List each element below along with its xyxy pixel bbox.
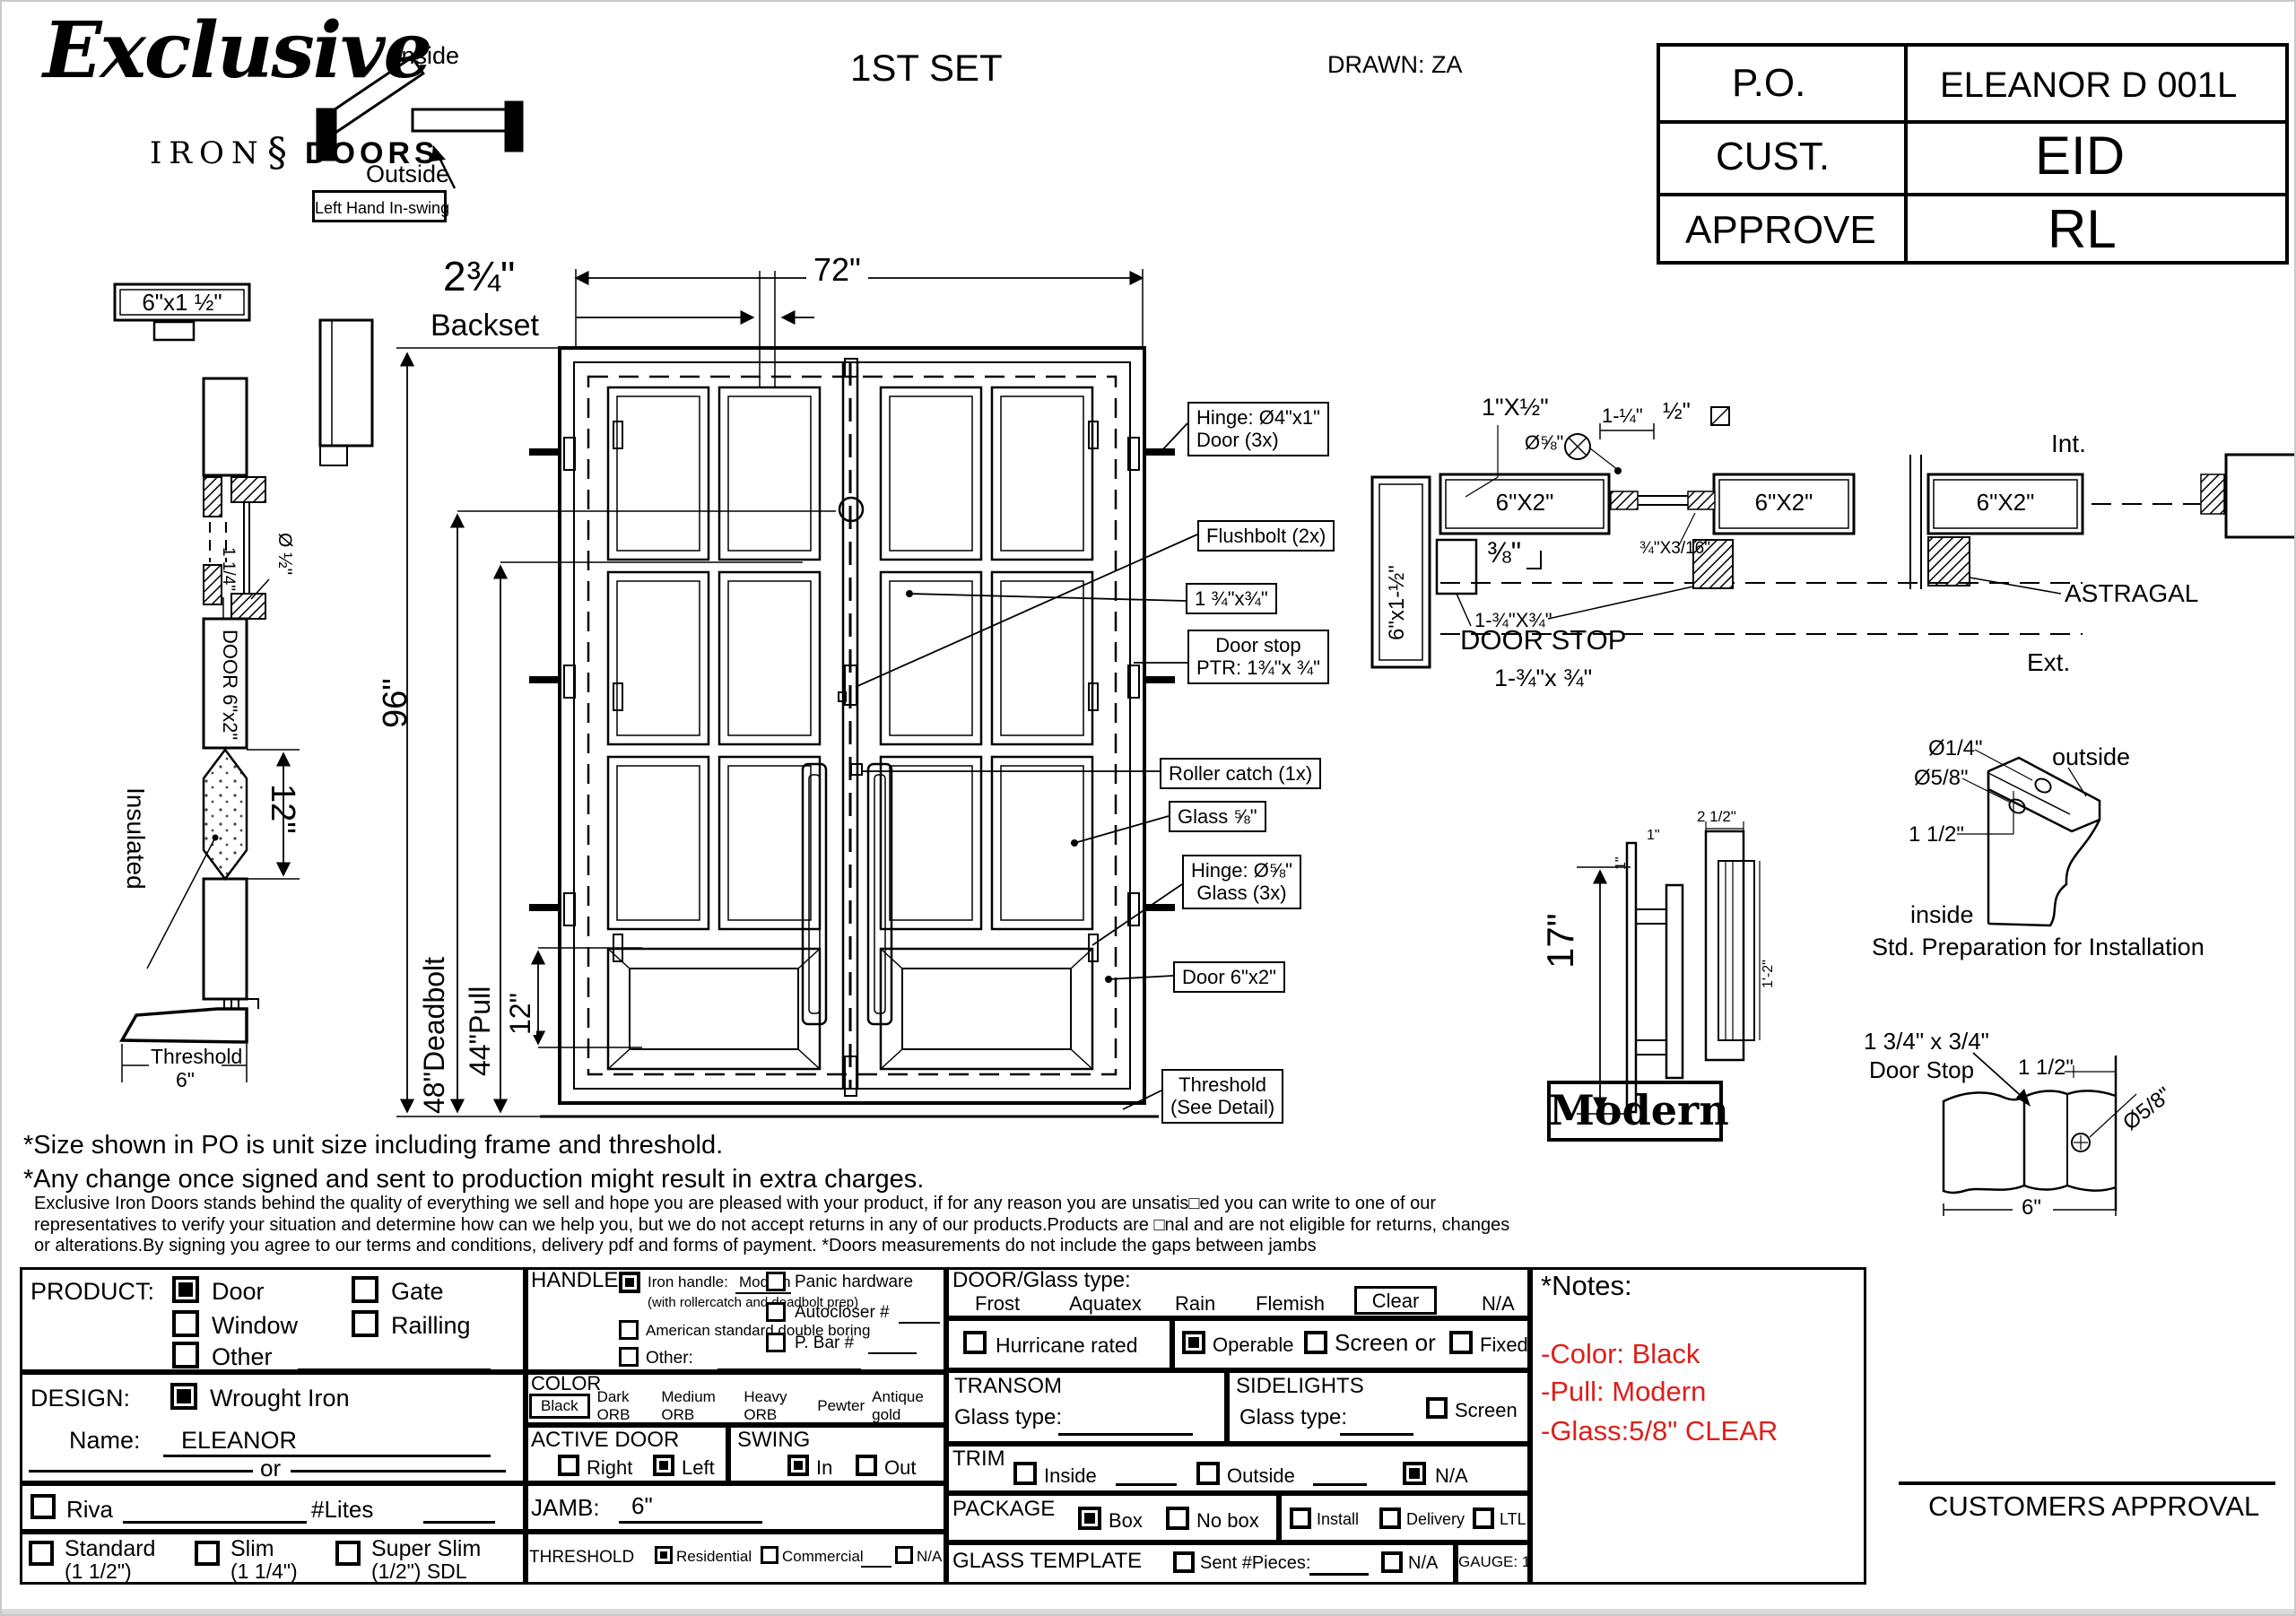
elev-height-dim: 96" [378,678,414,728]
form-threshold-commercial: Commercial [782,1549,864,1565]
callout-threshold: Threshold (See Detail) [1161,1069,1283,1124]
note-fine-3: or alterations.By signing you agree to o… [34,1237,1317,1255]
stopd-size: 1 3/4" x 3/4" [1864,1030,1989,1054]
form-template-na: N/A [1408,1554,1438,1573]
form-color-title: COLOR [531,1373,601,1394]
callout-hinge-glass-line2: Glass (3x) [1191,882,1292,904]
form-product-railing: Railling [391,1313,471,1338]
handle-proj-dim-a: 1" [1614,856,1630,870]
checkbox-american-boring [619,1320,639,1340]
form-package-nobox-label: No box [1196,1510,1259,1531]
checkbox-active-right [558,1455,579,1476]
checkbox-product-railing [352,1310,378,1337]
checkbox-handle-other [619,1347,639,1367]
blank-riva [123,1519,307,1524]
checkbox-active-left [653,1455,674,1476]
blank-transom-glass [1058,1431,1193,1436]
form-product-door: Door [212,1279,265,1304]
form-color-black: Black [529,1394,590,1419]
checkbox-swing-in [787,1455,809,1476]
form-panic-hardware: Panic hardware [795,1273,913,1291]
form-trim-outside: Outside [1227,1465,1295,1486]
form-transom-glass-type: Glass type: [954,1406,1062,1429]
po-label: P.O. [1732,63,1805,104]
elev-backset-word: Backset [430,310,539,343]
callout-door-tube: Door 6"x2" [1173,961,1285,993]
blank-product-other [298,1367,491,1371]
callout-hinge-door: Hinge: Ø4"x1" Door (3x) [1187,402,1329,456]
checkbox-product-window [172,1310,199,1337]
form-notes-glass: -Glass:5/8" CLEAR [1541,1417,1778,1447]
drawn-by: DRAWN: ZA [1327,52,1463,77]
checkbox-product-gate [352,1276,378,1303]
checkbox-install [1290,1507,1311,1529]
elev-deadbolt-dim: 48"Deadbolt [420,957,450,1114]
head-jamb-rot-label: 6"x1-½" [1386,565,1408,640]
form-threshold-residential: Residential [676,1549,752,1565]
checkbox-super-slim [335,1541,361,1566]
checkbox-threshold-commercial [761,1546,778,1564]
install-outside-label: outside [2052,744,2130,769]
form-trim-title: TRIM [952,1447,1005,1470]
swing-outside-label: Outside [366,161,449,187]
form-autocloser: Autocloser # [795,1304,890,1322]
form-color-options: Black Dark ORB Medium ORB Heavy ORB Pewt… [529,1392,942,1421]
form-active-door-title: ACTIVE DOOR [531,1429,679,1451]
form-glass-type-title: DOOR/Glass type: [952,1269,1131,1291]
form-design-name-label: Name: [69,1428,141,1453]
form-riva-label: Riva [66,1498,113,1522]
callout-threshold-line2: (See Detail) [1170,1096,1274,1118]
form-glass-clear-selected: Clear [1354,1286,1437,1315]
po-table: P.O. ELEANOR D 001L CUST. EID APPROVE RL [1657,43,2289,265]
form-threshold-na: N/A [917,1549,942,1565]
form-design-wrought: Wrought Iron [210,1386,350,1411]
handle-proj-dim-b: 1" [1647,829,1660,844]
form-package-box-label: Box [1109,1510,1143,1531]
jamb-stop-dim: 1 1/4" [219,547,237,591]
form-glass-na: N/A [1482,1293,1515,1314]
jamb-threshold-label: Threshold [151,1046,242,1067]
form-notes-color: -Color: Black [1541,1340,1700,1369]
checkbox-trim-inside [1013,1462,1037,1485]
head-dim114: 1-¼" [1602,405,1643,426]
callout-hinge-glass: Hinge: Ø⅝" Glass (3x) [1182,855,1301,909]
form-glass-template-title: GLASS TEMPLATE [952,1550,1142,1572]
callout-hinge-door-line2: Door (3x) [1196,429,1320,451]
checkbox-delivery [1379,1507,1401,1529]
blank-handle-other [717,1367,861,1370]
cust-label: CUST. [1716,136,1830,178]
callout-frame-size: 1 ¾"x¾" [1186,583,1277,614]
head-dim38: ⅜" [1487,538,1521,569]
blank-pbar [868,1351,917,1354]
blank-template-pieces [1309,1571,1369,1576]
elev-pull-dim: 44"Pull [465,986,496,1076]
form-handle-other: Other: [646,1350,693,1368]
checkbox-iron-handle [619,1272,640,1293]
head-tube1-label: 6"X2" [1440,491,1609,515]
form-sidelights-glass-type: Glass type: [1239,1406,1347,1429]
form-install-label: Install [1317,1511,1359,1528]
blank-sidelights-glass [1340,1431,1413,1436]
jamb-threshold-width: 6" [176,1069,195,1090]
jamb-glass-dia: Ø ½" [274,533,294,575]
note-line-2: *Any change once signed and sent to prod… [23,1166,924,1193]
approve-value: RL [2048,201,2117,257]
design-or-line-left [29,1470,253,1473]
form-standard-size: (1 1/2") [65,1560,132,1582]
callout-roller-catch: Roller catch (1x) [1160,758,1321,789]
form-template-sent: Sent #Pieces: [1200,1554,1310,1573]
note-fine-1: Exclusive Iron Doors stands behind the q… [34,1195,1436,1213]
checkbox-design-wrought [170,1383,197,1410]
approval-signature-line [1899,1481,2275,1485]
form-notes-pull: -Pull: Modern [1541,1377,1706,1407]
approve-label: APPROVE [1685,210,1876,251]
form-color-dark: Dark ORB [597,1388,655,1424]
callout-flushbolt: Flushbolt (2x) [1197,520,1335,552]
callout-hinge-glass-line1: Hinge: Ø⅝" [1191,859,1292,882]
note-fine-2: representatives to verify your situation… [34,1216,1509,1235]
checkbox-swing-out [856,1455,877,1476]
stopd-width-dim: 6" [2018,1196,2045,1219]
form-screen-or-label: Screen or [1335,1331,1436,1355]
form-glass-frost: Frost [975,1293,1020,1314]
form-color-heavy: Heavy ORB [744,1388,810,1424]
checkbox-template-sent [1173,1551,1195,1573]
blank-lites [423,1519,495,1524]
stopd-name: Door Stop [1869,1058,1974,1082]
form-super-slim-label: Super Slim [371,1537,481,1560]
form-package-title: PACKAGE [952,1498,1055,1520]
form-super-slim-size: (1/2") SDL [371,1560,467,1582]
checkbox-package-box [1078,1507,1101,1530]
form-transom-title: TRANSOM [954,1375,1062,1397]
form-handle-title: HANDLE [531,1269,618,1291]
form-trim-inside: Inside [1044,1465,1097,1486]
checkbox-autocloser [766,1302,786,1322]
checkbox-riva [30,1494,56,1519]
form-color-pewter: Pewter [817,1397,865,1415]
blank-jamb [619,1519,762,1524]
checkbox-fixed [1449,1331,1473,1354]
form-product-gate: Gate [391,1279,444,1304]
callout-door-stop: Door stop PTR: 1¾"x ¾" [1187,630,1329,684]
form-design-name-value: ELEANOR [181,1428,297,1453]
elev-backset-dim: 2¾" [443,255,515,298]
callout-threshold-line1: Threshold [1170,1073,1274,1096]
po-value: ELEANOR D 001L [1940,66,2237,104]
head-bead-dim: ¾"X3/16" [1639,540,1710,558]
form-swing-title: SWING [737,1429,810,1451]
head-door-stop-size: 1-¾"x ¾" [1494,665,1592,691]
blank-trim-inside [1116,1481,1177,1486]
head-tube3-label: 6"X2" [1928,491,2083,515]
form-color-medium: Medium ORB [661,1388,736,1424]
elev-rail-dim: 12" [506,993,536,1035]
checkbox-product-door [172,1276,199,1303]
checkbox-sidelights-screen [1426,1397,1448,1419]
jamb-top-label: 6"x1 ½" [115,284,249,320]
form-hurricane-label: Hurricane rated [996,1334,1138,1356]
checkbox-template-na [1381,1551,1403,1573]
form-design-title: DESIGN: [30,1386,130,1411]
stopd-offset-dim: 1 1/2" [2018,1056,2074,1079]
swing-inside-label: Inside [395,43,459,68]
form-threshold-title: THRESHOLD [529,1549,634,1567]
head-door-stop-title: DOOR STOP [1460,626,1626,656]
jamb-door-label: DOOR 6"x2" [220,630,240,740]
form-jamb-value: 6" [631,1494,653,1518]
logo-fleur-icon: § [267,133,287,174]
checkbox-package-nobox [1166,1507,1189,1530]
note-line-1: *Size shown in PO is unit size including… [23,1132,723,1159]
install-big-hole-dim: Ø5/8" [1914,767,1969,789]
form-jamb-title: JAMB: [531,1496,600,1520]
install-caption: Std. Preparation for Installation [1872,934,2205,960]
swing-hand-label: Left Hand In-swing [312,190,447,222]
form-ltl-label: LTL [1500,1511,1526,1528]
form-trim-na: N/A [1435,1465,1468,1486]
checkbox-trim-na [1403,1462,1426,1485]
checkbox-threshold-na [895,1546,913,1564]
logo-iron: IRON [150,138,265,170]
form-iron-handle-label: Iron handle: [648,1274,728,1290]
checkbox-ltl [1473,1507,1494,1529]
form-sidelights-screen: Screen [1455,1400,1518,1421]
set-title: 1ST SET [850,48,1003,88]
head-screw-dim: Ø⅝" [1525,432,1563,453]
checkbox-operable [1182,1331,1205,1354]
blank-design-name [163,1453,491,1457]
form-active-right: Right [587,1457,632,1478]
form-delivery-label: Delivery [1406,1511,1465,1528]
form-glass-flemish: Flemish [1256,1293,1325,1314]
blank-trim-outside [1313,1481,1367,1486]
callout-door-stop-line1: Door stop [1196,634,1320,656]
design-or-line-right [291,1470,506,1473]
handle-length-dim: 1'-2" [1761,960,1777,988]
handle-name-label: Modern [1549,1082,1721,1140]
callout-hinge-door-line1: Hinge: Ø4"x1" [1196,406,1320,429]
checkbox-hurricane [963,1331,987,1354]
form-design-or: or [260,1456,281,1481]
handle-height-dim: 17" [1541,913,1580,969]
form-fixed-label: Fixed [1480,1334,1528,1355]
form-gauge-value: GAUGE: 14 [1458,1554,1539,1570]
form-color-antique: Antique gold [872,1388,942,1424]
form-sidelights-title: SIDELIGHTS [1236,1375,1364,1397]
form-standard-label: Standard [65,1537,155,1560]
jamb-insulated-label: Insulated [123,787,149,890]
blank-autocloser [899,1320,940,1324]
head-astragal-bar-dim: 1"X½" [1482,395,1549,420]
install-inside-label: inside [1910,902,1974,927]
checkbox-panic-hardware [766,1272,786,1291]
logo-exclusive: Exclusive [43,11,430,91]
form-slim-label: Slim [230,1537,274,1560]
head-tube2-label: 6"X2" [1714,491,1854,515]
callout-door-stop-line2: PTR: 1¾"x ¾" [1196,656,1320,679]
jamb-rail-dim: 12" [264,784,300,834]
checkbox-product-other [172,1342,199,1368]
elev-width-dim: 72" [806,253,868,287]
blank-threshold-commercial [861,1564,891,1568]
approval-label: CUSTOMERS APPROVAL [1928,1492,2259,1522]
form-product-title: PRODUCT: [30,1279,154,1304]
form-active-left: Left [682,1457,715,1478]
checkbox-pbar [766,1333,786,1352]
handle-width-dim: 2 1/2" [1697,809,1736,825]
callout-glass: Glass ⅝" [1169,801,1266,832]
checkbox-standard [29,1541,54,1566]
checkbox-screen-or [1304,1331,1327,1354]
form-glass-rain: Rain [1175,1293,1215,1314]
install-offset-dim: 1 1/2" [1909,823,1964,846]
form-swing-in: In [816,1457,832,1478]
head-interior-label: Int. [2051,430,2086,456]
form-slim-size: (1 1/4") [230,1560,298,1582]
cust-value: EID [2035,127,2125,184]
form-product-window: Window [212,1313,298,1338]
form-pbar: P. Bar # [795,1334,854,1352]
head-dim12: ½" [1663,399,1691,423]
form-product-other: Other [212,1344,273,1369]
head-astragal-label: ASTRAGAL [2065,580,2198,606]
install-small-hole-dim: Ø1/4" [1928,737,1983,760]
form-swing-out: Out [884,1457,916,1478]
spec-sheet: Exclusive IRON § DOORS 1ST SET DRAWN: ZA… [0,0,2296,1616]
form-operable-label: Operable [1213,1334,1294,1355]
checkbox-threshold-residential [655,1546,673,1564]
form-notes-title: *Notes: [1541,1272,1632,1301]
form-lites-label: #Lites [311,1498,373,1522]
form-glass-aquatex: Aquatex [1069,1293,1142,1314]
checkbox-trim-outside [1196,1462,1220,1485]
checkbox-slim [195,1541,220,1566]
head-exterior-label: Ext. [2027,649,2070,675]
sheet-bottom-edge [2,1609,2296,1616]
